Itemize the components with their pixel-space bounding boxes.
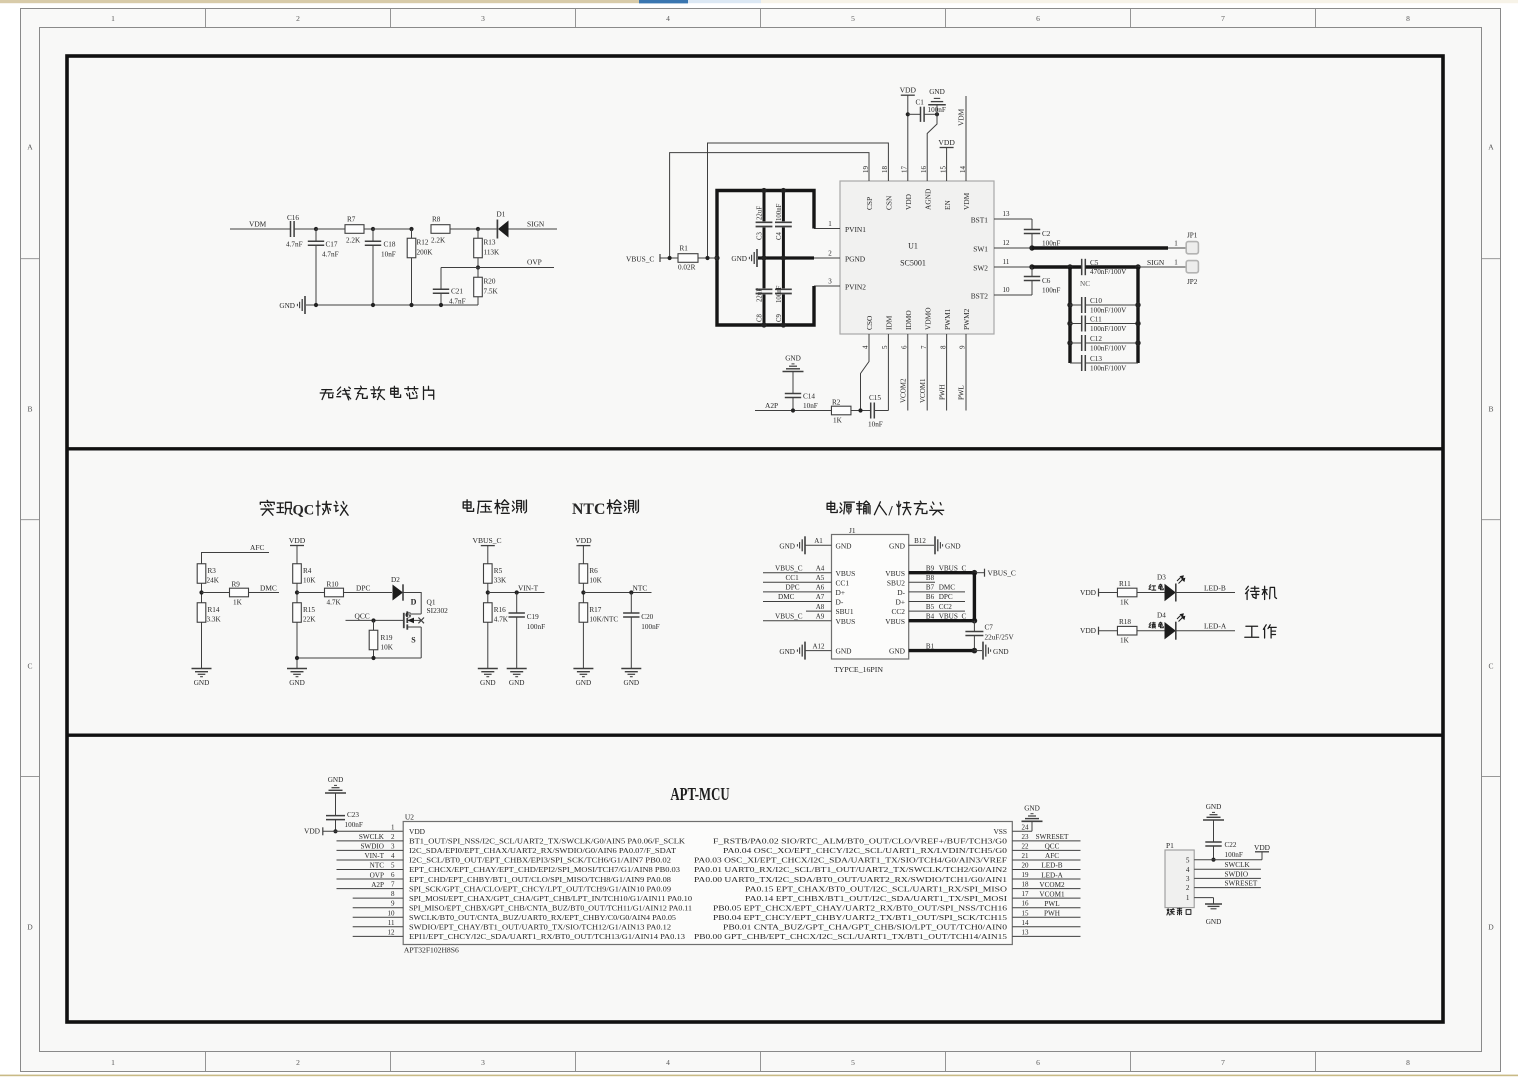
svg-text:R6: R6	[589, 567, 598, 575]
svg-text:B1: B1	[926, 642, 935, 650]
svg-text:APT-MCU: APT-MCU	[670, 784, 729, 804]
svg-text:6: 6	[1036, 14, 1040, 23]
svg-text:15: 15	[1022, 909, 1030, 917]
svg-text:13: 13	[1003, 210, 1011, 218]
svg-text:12: 12	[388, 928, 396, 936]
svg-text:R3: R3	[208, 567, 217, 575]
svg-text:GND: GND	[889, 541, 906, 550]
svg-text:7: 7	[1221, 1058, 1225, 1067]
svg-text:1: 1	[828, 220, 832, 228]
svg-text:NC: NC	[1080, 280, 1090, 288]
svg-text:1: 1	[111, 14, 115, 23]
svg-text:C23: C23	[347, 811, 359, 819]
svg-text:SIGN: SIGN	[527, 220, 545, 229]
svg-text:5: 5	[1186, 856, 1190, 864]
svg-text:B7: B7	[926, 584, 935, 592]
svg-text:GND: GND	[731, 255, 747, 263]
svg-text:13: 13	[1022, 928, 1030, 936]
svg-text:IDMO: IDMO	[904, 310, 913, 330]
svg-text:GND: GND	[945, 543, 961, 551]
svg-text:VDD: VDD	[938, 138, 955, 147]
svg-text:B6: B6	[926, 593, 935, 601]
svg-text:100nF/100V: 100nF/100V	[1090, 307, 1127, 315]
svg-text:5: 5	[851, 1058, 855, 1067]
svg-text:TYPCE_16PIN: TYPCE_16PIN	[834, 665, 883, 674]
svg-text:VDD: VDD	[904, 193, 913, 210]
svg-text:VDM: VDM	[249, 220, 267, 229]
svg-text:R20: R20	[484, 278, 496, 286]
svg-text:BST1: BST1	[971, 215, 989, 224]
svg-text:QCC: QCC	[1045, 843, 1060, 851]
svg-text:10K/NTC: 10K/NTC	[589, 616, 618, 624]
svg-text:5: 5	[851, 14, 855, 23]
svg-text:1: 1	[1174, 239, 1178, 247]
svg-text:CSP: CSP	[865, 197, 874, 210]
svg-text:SPI_SCK/GPT_CHA/CLO/EPT_CHCY/L: SPI_SCK/GPT_CHA/CLO/EPT_CHCY/LPT_OUT/TCH…	[409, 885, 672, 893]
svg-text:R1: R1	[680, 245, 689, 253]
svg-text:R11: R11	[1119, 580, 1131, 588]
svg-text:VBUS: VBUS	[836, 569, 856, 578]
svg-text:11: 11	[1003, 258, 1010, 266]
svg-text:10K: 10K	[589, 577, 602, 585]
svg-text:SPI_MOSI/EPT_CHAX/GPT_CHA/GPT_: SPI_MOSI/EPT_CHAX/GPT_CHA/GPT_CHB/LPT_IN…	[409, 895, 693, 903]
svg-text:4: 4	[666, 1058, 670, 1067]
svg-text:DMC: DMC	[778, 593, 795, 601]
svg-text:GND: GND	[785, 355, 801, 363]
svg-text:B12: B12	[914, 537, 926, 545]
svg-text:VBUS_C: VBUS_C	[988, 569, 1016, 578]
svg-text:GND: GND	[779, 648, 795, 656]
svg-text:22uF: 22uF	[757, 206, 764, 220]
svg-text:C: C	[1488, 662, 1493, 671]
svg-text:VDD: VDD	[304, 826, 321, 835]
svg-text:10: 10	[388, 909, 396, 917]
svg-text:C12: C12	[1090, 335, 1102, 343]
svg-text:SWRESET: SWRESET	[1225, 880, 1258, 888]
svg-text:NTC: NTC	[370, 862, 385, 870]
svg-text:PWM1: PWM1	[943, 308, 952, 330]
svg-text:2.2K: 2.2K	[346, 237, 361, 245]
svg-text:VBUS_C: VBUS_C	[939, 612, 967, 620]
svg-text:SIGN: SIGN	[1147, 258, 1165, 267]
svg-text:100nF: 100nF	[345, 821, 363, 829]
svg-text:VDD: VDD	[1254, 843, 1271, 852]
svg-text:21: 21	[1022, 852, 1030, 860]
svg-text:C18: C18	[384, 241, 396, 249]
svg-text:GND: GND	[836, 647, 853, 656]
svg-text:VDMO: VDMO	[923, 307, 932, 330]
svg-text:GND: GND	[509, 679, 525, 687]
svg-text:C5: C5	[1090, 259, 1099, 267]
svg-text:A: A	[27, 143, 33, 152]
svg-text:2: 2	[828, 250, 832, 258]
svg-text:C19: C19	[527, 613, 539, 621]
svg-text:C22: C22	[1225, 841, 1237, 849]
svg-text:SWCLK/BT0_OUT/CNTA_BUZ/UART0_R: SWCLK/BT0_OUT/CNTA_BUZ/UART0_RX/EPT_CHBY…	[409, 914, 677, 922]
svg-text:C13: C13	[1090, 355, 1102, 363]
svg-text:100nF: 100nF	[1042, 287, 1060, 295]
svg-text:SPI_MISO/EPT_CHBX/GPT_CHB/CNTA: SPI_MISO/EPT_CHBX/GPT_CHB/CNTA_BUZ/BT0_O…	[409, 904, 693, 912]
svg-text:C11: C11	[1090, 316, 1102, 324]
svg-text:PA0.15 EPT_CHAX/BT0_OUT/I2C_SC: PA0.15 EPT_CHAX/BT0_OUT/I2C_SCL/UART1_RX…	[745, 885, 1007, 893]
svg-text:1: 1	[1174, 258, 1178, 266]
svg-text:AGND: AGND	[923, 188, 932, 210]
svg-text:R19: R19	[381, 634, 393, 642]
svg-text:/: /	[888, 504, 894, 520]
svg-text:1: 1	[111, 1058, 115, 1067]
svg-text:B5: B5	[926, 603, 935, 611]
svg-text:VBUS_C: VBUS_C	[626, 254, 654, 263]
svg-text:GND: GND	[194, 679, 210, 687]
svg-text:OVP: OVP	[370, 871, 384, 879]
svg-text:F_RSTB/PA0.02 SIO/RTC_ALM/BT0_: F_RSTB/PA0.02 SIO/RTC_ALM/BT0_OUT/CLO/VR…	[713, 838, 1008, 846]
svg-text:SWDIO: SWDIO	[1225, 870, 1249, 878]
svg-text:PA0.00 UART0_TX/I2C_SDA/BT0_OU: PA0.00 UART0_TX/I2C_SDA/BT0_OUT/UART2_RX…	[694, 876, 1008, 884]
svg-text:VBUS_C: VBUS_C	[939, 564, 967, 572]
svg-text:GND: GND	[480, 679, 496, 687]
svg-text:PB0.00 GPT_CHB/EPT_CHCX/I2C_SC: PB0.00 GPT_CHB/EPT_CHCX/I2C_SCL/UART1_TX…	[694, 933, 1008, 941]
svg-text:R15: R15	[303, 606, 315, 614]
svg-text:2: 2	[391, 833, 395, 841]
svg-text:7: 7	[920, 345, 928, 349]
svg-text:100nF: 100nF	[1225, 851, 1243, 859]
svg-text:I2C_SCL/BT0_OUT/EPT_CHBX/EPI3/: I2C_SCL/BT0_OUT/EPT_CHBX/EPI3/SPI_SCK/TC…	[409, 857, 672, 865]
svg-text:DMC: DMC	[939, 584, 956, 592]
svg-text:VSS: VSS	[993, 827, 1007, 836]
svg-text:D-: D-	[836, 598, 844, 607]
svg-text:A1: A1	[814, 537, 823, 545]
svg-text:I2C_SDA/EPI0/EPT_CHAX/UART2_RX: I2C_SDA/EPI0/EPT_CHAX/UART2_RX/SWDIO/G0/…	[409, 847, 677, 855]
svg-text:A9: A9	[816, 612, 825, 620]
svg-text:C7: C7	[985, 624, 994, 632]
svg-text:D+: D+	[836, 588, 846, 597]
svg-text:C6: C6	[1042, 277, 1051, 285]
svg-text:BT1_OUT/SPI_NSS/I2C_SCL/UART2_: BT1_OUT/SPI_NSS/I2C_SCL/UART2_TX/SWCLK/G…	[409, 838, 685, 846]
svg-text:PWH: PWH	[938, 384, 946, 400]
svg-text:A4: A4	[816, 564, 825, 572]
svg-text:R2: R2	[832, 399, 841, 407]
svg-text:EPI1/EPT_CHCY/I2C_SDA/UART1_RX: EPI1/EPT_CHCY/I2C_SDA/UART1_RX/BT0_OUT/T…	[409, 933, 686, 941]
svg-text:PB0.04 EPT_CHCY/EPT_CHBY/UART2: PB0.04 EPT_CHCY/EPT_CHBY/UART2_TX/BT1_OU…	[713, 914, 1008, 922]
svg-text:VBUS: VBUS	[885, 617, 905, 626]
svg-text:PVIN2: PVIN2	[845, 282, 866, 291]
svg-text:C17: C17	[326, 241, 338, 249]
svg-text:J1: J1	[849, 526, 856, 535]
svg-text:VBUS_C: VBUS_C	[473, 536, 502, 545]
svg-text:100nF/100V: 100nF/100V	[1090, 345, 1127, 353]
svg-text:R9: R9	[232, 581, 241, 589]
svg-text:4: 4	[391, 852, 395, 860]
svg-text:A12: A12	[812, 642, 825, 650]
svg-text:VDD: VDD	[1080, 588, 1097, 597]
svg-text:SW1: SW1	[973, 244, 988, 253]
svg-text:SWDIO: SWDIO	[360, 843, 384, 851]
svg-text:NTC: NTC	[633, 583, 648, 592]
svg-text:C15: C15	[869, 394, 881, 402]
svg-text:DPC: DPC	[939, 593, 953, 601]
svg-text:SBU2: SBU2	[887, 578, 905, 587]
svg-text:GND: GND	[289, 679, 305, 687]
svg-text:C4: C4	[776, 231, 783, 240]
svg-text:2: 2	[296, 14, 300, 23]
svg-text:R10: R10	[327, 581, 339, 589]
svg-text:470nF/100V: 470nF/100V	[1090, 268, 1127, 276]
svg-text:C1: C1	[916, 99, 925, 107]
svg-text:18: 18	[1022, 881, 1030, 889]
svg-text:100nF: 100nF	[776, 203, 783, 221]
svg-text:1: 1	[391, 823, 395, 831]
svg-text:GND: GND	[279, 302, 295, 310]
svg-text:A: A	[1488, 143, 1494, 152]
svg-text:B: B	[27, 405, 32, 414]
svg-text:PA0.01 UART0_RX/I2C_SCL/BT1_OU: PA0.01 UART0_RX/I2C_SCL/BT1_OUT/UART2_TX…	[694, 866, 1008, 874]
svg-text:22uF/25V: 22uF/25V	[985, 634, 1015, 642]
svg-text:10nF: 10nF	[803, 402, 818, 410]
svg-text:2: 2	[1186, 884, 1190, 892]
svg-text:C20: C20	[641, 613, 653, 621]
svg-text:R14: R14	[208, 606, 220, 614]
svg-text:SI2302: SI2302	[427, 606, 449, 615]
svg-text:4.7K: 4.7K	[494, 616, 509, 624]
svg-text:D+: D+	[895, 598, 905, 607]
svg-text:22uF: 22uF	[757, 288, 764, 302]
svg-text:100nF: 100nF	[776, 285, 783, 303]
svg-text:SWRESET: SWRESET	[1036, 833, 1069, 841]
svg-text:PWL: PWL	[1044, 900, 1059, 908]
svg-text:VBUS: VBUS	[885, 569, 905, 578]
svg-text:QC: QC	[293, 503, 315, 519]
svg-text:APT32F102H8S6: APT32F102H8S6	[404, 946, 459, 955]
svg-text:4.7nF: 4.7nF	[449, 298, 466, 306]
svg-text:OVP: OVP	[527, 258, 542, 267]
svg-text:19: 19	[1022, 871, 1030, 879]
svg-text:C10: C10	[1090, 297, 1102, 305]
svg-text:VBUS: VBUS	[836, 617, 856, 626]
svg-text:3.3K: 3.3K	[207, 616, 222, 624]
svg-text:2.2K: 2.2K	[431, 237, 446, 245]
svg-text:CC2: CC2	[939, 603, 953, 611]
svg-text:1K: 1K	[1120, 599, 1130, 607]
svg-text:A6: A6	[816, 584, 825, 592]
svg-text:23: 23	[1022, 833, 1030, 841]
svg-text:C8: C8	[757, 313, 764, 322]
svg-text:PVIN1: PVIN1	[845, 225, 866, 234]
svg-text:100nF/100V: 100nF/100V	[1090, 325, 1127, 333]
svg-text:SC5001: SC5001	[900, 259, 926, 268]
svg-text:B: B	[1488, 405, 1493, 414]
svg-text:SWDIO/EPT_CHAY/BT1_OUT/UART0_T: SWDIO/EPT_CHAY/BT1_OUT/UART0_TX/SIO/TCH1…	[409, 924, 672, 932]
svg-text:4: 4	[666, 14, 670, 23]
svg-text:JP2: JP2	[1187, 278, 1198, 286]
svg-text:7: 7	[391, 881, 395, 889]
svg-text:24: 24	[1022, 823, 1030, 831]
svg-text:GND: GND	[889, 647, 906, 656]
svg-text:9: 9	[959, 345, 967, 349]
svg-text:VCOM2: VCOM2	[900, 378, 908, 403]
svg-text:0.02R: 0.02R	[678, 264, 696, 272]
svg-text:GND: GND	[328, 776, 344, 784]
svg-text:C21: C21	[451, 288, 463, 296]
svg-text:A2P: A2P	[371, 881, 384, 889]
svg-text:PA0.14 EPT_CHBX/BT1_OUT/I2C_SD: PA0.14 EPT_CHBX/BT1_OUT/I2C_SDA/UART1_TX…	[745, 895, 1008, 903]
svg-text:PA0.03 OSC_XI/EPT_CHCX/I2C_SDA: PA0.03 OSC_XI/EPT_CHCX/I2C_SDA/UART1_TX/…	[694, 857, 1007, 865]
svg-text:VIN-T: VIN-T	[518, 583, 539, 592]
svg-text:VDD: VDD	[575, 536, 592, 545]
svg-text:10nF: 10nF	[868, 421, 883, 429]
svg-text:AFC: AFC	[250, 543, 264, 552]
svg-text:R13: R13	[484, 239, 496, 247]
svg-text:PGND: PGND	[845, 254, 866, 263]
svg-text:4.7nF: 4.7nF	[322, 251, 339, 259]
svg-text:IDM: IDM	[885, 315, 894, 330]
svg-text:AFC: AFC	[1045, 852, 1059, 860]
svg-text:4.7K: 4.7K	[327, 599, 342, 607]
svg-text:4: 4	[1186, 866, 1190, 874]
svg-text:C2: C2	[1042, 230, 1051, 238]
svg-text:JP1: JP1	[1187, 232, 1198, 240]
svg-text:200K: 200K	[417, 249, 434, 257]
svg-text:CSN: CSN	[885, 195, 894, 210]
svg-text:U1: U1	[908, 242, 918, 251]
svg-text:8: 8	[1406, 1058, 1410, 1067]
svg-text:EPT_CHCX/EPT_CHAY/EPT_CHD/EPI2: EPT_CHCX/EPT_CHAY/EPT_CHD/EPI2/SPI_MOSI/…	[409, 866, 681, 874]
svg-text:U2: U2	[405, 813, 414, 822]
svg-text:SWCLK: SWCLK	[359, 833, 385, 841]
svg-text:R5: R5	[494, 567, 503, 575]
svg-text:GND: GND	[624, 679, 640, 687]
svg-text:10nF: 10nF	[381, 251, 396, 259]
svg-text:16: 16	[1022, 900, 1030, 908]
svg-text:4.7nF: 4.7nF	[286, 240, 303, 248]
svg-text:PWH: PWH	[1044, 909, 1060, 917]
svg-text:R18: R18	[1119, 618, 1131, 626]
svg-text:3: 3	[828, 278, 832, 286]
svg-text:3: 3	[481, 14, 485, 23]
svg-text:VDD: VDD	[289, 536, 306, 545]
svg-text:C16: C16	[287, 214, 299, 222]
svg-text:22: 22	[1022, 842, 1030, 850]
svg-text:D: D	[27, 923, 33, 932]
svg-text:C: C	[27, 662, 32, 671]
svg-text:EPT_CHD/EPT_CHBY/BT1_OUT/CLO/S: EPT_CHD/EPT_CHBY/BT1_OUT/CLO/SPI_MISO/TC…	[409, 876, 672, 884]
svg-text:VDM: VDM	[957, 108, 966, 126]
svg-text:D: D	[411, 598, 417, 607]
svg-text:EN: EN	[943, 199, 952, 210]
svg-text:12: 12	[1003, 239, 1011, 247]
svg-text:PA0.04 OSC_XO/EPT_CHCY/I2C_SCL: PA0.04 OSC_XO/EPT_CHCY/I2C_SCL/UART1_RX/…	[723, 847, 1008, 855]
svg-text:D4: D4	[1157, 612, 1166, 620]
svg-text:DPC: DPC	[356, 583, 370, 592]
svg-text:11: 11	[388, 919, 395, 927]
svg-text:4: 4	[862, 345, 870, 349]
svg-text:NTC: NTC	[572, 501, 605, 518]
svg-text:CC1: CC1	[786, 574, 800, 582]
svg-text:GND: GND	[576, 679, 592, 687]
svg-text:VBUS_C: VBUS_C	[775, 612, 803, 620]
svg-text:R8: R8	[432, 216, 441, 224]
svg-text:LED-A: LED-A	[1041, 871, 1063, 879]
svg-text:D3: D3	[1157, 574, 1166, 582]
svg-text:R12: R12	[417, 239, 429, 247]
svg-text:GND: GND	[929, 88, 945, 96]
svg-text:20: 20	[1022, 862, 1030, 870]
svg-text:PB0.05 EPT_CHCX/EPT_CHAY/UART2: PB0.05 EPT_CHCX/EPT_CHAY/UART2_RX/BT0_OU…	[713, 904, 1008, 912]
svg-text:VCOM1: VCOM1	[919, 378, 927, 403]
svg-text:PWL: PWL	[958, 385, 966, 400]
svg-text:R16: R16	[494, 606, 506, 614]
svg-text:2: 2	[296, 1058, 300, 1067]
svg-text:VIN-T: VIN-T	[364, 852, 384, 860]
svg-text:3: 3	[391, 842, 395, 850]
svg-text:7: 7	[1221, 14, 1225, 23]
svg-text:D: D	[1488, 923, 1494, 932]
svg-text:6: 6	[1036, 1058, 1040, 1067]
svg-text:10: 10	[1003, 286, 1011, 294]
svg-text:PWM2: PWM2	[962, 308, 971, 330]
svg-text:A5: A5	[816, 574, 825, 582]
svg-text:GND: GND	[1206, 803, 1222, 811]
svg-text:VDM: VDM	[962, 192, 971, 210]
svg-text:GND: GND	[779, 543, 795, 551]
svg-text:100nF: 100nF	[641, 623, 659, 631]
svg-text:8: 8	[1406, 14, 1410, 23]
svg-text:1K: 1K	[1120, 637, 1130, 645]
svg-text:1K: 1K	[833, 417, 843, 425]
svg-text:PB0.01 CNTA_BUZ/GPT_CHA/GPT_CH: PB0.01 CNTA_BUZ/GPT_CHA/GPT_CHB/SIO/LPT_…	[723, 924, 1008, 932]
svg-text:5: 5	[881, 345, 889, 349]
svg-text:VDD: VDD	[900, 86, 917, 95]
svg-text:GND: GND	[1206, 918, 1222, 926]
svg-text:8: 8	[939, 345, 947, 349]
svg-text:A2P: A2P	[765, 401, 778, 410]
svg-text:GND: GND	[836, 541, 853, 550]
svg-text:SW2: SW2	[973, 263, 988, 272]
svg-text:CC2: CC2	[891, 607, 905, 616]
svg-text:P1: P1	[1166, 841, 1174, 850]
svg-text:14: 14	[1022, 919, 1030, 927]
svg-text:SBU1: SBU1	[836, 607, 854, 616]
svg-text:8: 8	[391, 890, 395, 898]
svg-text:1K: 1K	[233, 599, 243, 607]
svg-text:24K: 24K	[207, 577, 220, 585]
svg-text:DPC: DPC	[786, 584, 800, 592]
svg-text:6: 6	[391, 871, 395, 879]
svg-text:GND: GND	[993, 648, 1009, 656]
svg-text:LED-B: LED-B	[1041, 862, 1062, 870]
svg-text:7.5K: 7.5K	[484, 288, 499, 296]
svg-text:CSO: CSO	[865, 315, 874, 330]
svg-text:113K: 113K	[484, 249, 501, 257]
svg-text:VDD: VDD	[409, 827, 426, 836]
svg-text:LED-B: LED-B	[1204, 583, 1226, 592]
svg-text:SWCLK: SWCLK	[1225, 861, 1251, 869]
svg-text:A8: A8	[816, 603, 825, 611]
svg-text:C9: C9	[776, 313, 783, 322]
svg-text:DMC: DMC	[260, 583, 277, 592]
svg-text:VDD: VDD	[1080, 626, 1097, 635]
svg-text:GND: GND	[1024, 805, 1040, 813]
svg-text:D2: D2	[391, 576, 400, 584]
svg-text:CC1: CC1	[836, 578, 850, 587]
svg-text:D1: D1	[497, 211, 506, 219]
svg-text:B9: B9	[926, 564, 935, 572]
svg-text:22K: 22K	[303, 616, 316, 624]
svg-text:B8: B8	[926, 574, 935, 582]
svg-text:33K: 33K	[494, 577, 507, 585]
svg-text:1: 1	[1186, 894, 1190, 902]
svg-text:VCOM2: VCOM2	[1039, 881, 1065, 889]
svg-text:6: 6	[901, 345, 909, 349]
